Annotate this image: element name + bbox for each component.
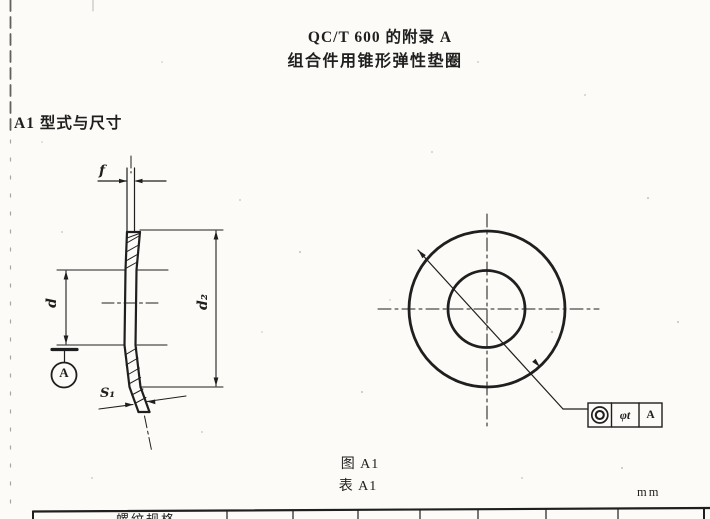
scanned-standard-page: QC/T 600 的附录 A 组合件用锥形弹性垫圈 A1 型式与尺寸 f d d… (0, 0, 710, 519)
dim-label-d: d (44, 293, 64, 313)
section-heading: A1 型式与尺寸 (14, 115, 122, 133)
dim-f (98, 168, 166, 232)
dim-d (57, 270, 168, 345)
dim-label-d2: d₂ (195, 291, 215, 313)
datum-label: A (52, 366, 76, 381)
tolerance-value: φt (611, 404, 639, 426)
scan-fold-line (11, 0, 94, 505)
washer-section-outline (125, 232, 150, 412)
technical-drawing (0, 0, 710, 519)
tolerance-datum-ref: A (639, 404, 662, 426)
unit-label: mm (637, 485, 660, 499)
table-partial-header: 螺纹规格 (116, 513, 176, 519)
centerlines-section (102, 156, 160, 450)
table-caption: 表 A1 (328, 479, 388, 495)
front-view (378, 214, 662, 428)
appendix-subtitle: 组合件用锥形弹性垫圈 (225, 53, 525, 71)
dim-label-f: f (99, 163, 105, 179)
dim-label-s1: S₁ (100, 387, 115, 402)
figure-caption: 图 A1 (330, 457, 390, 473)
appendix-title: QC/T 600 的附录 A (230, 29, 530, 47)
